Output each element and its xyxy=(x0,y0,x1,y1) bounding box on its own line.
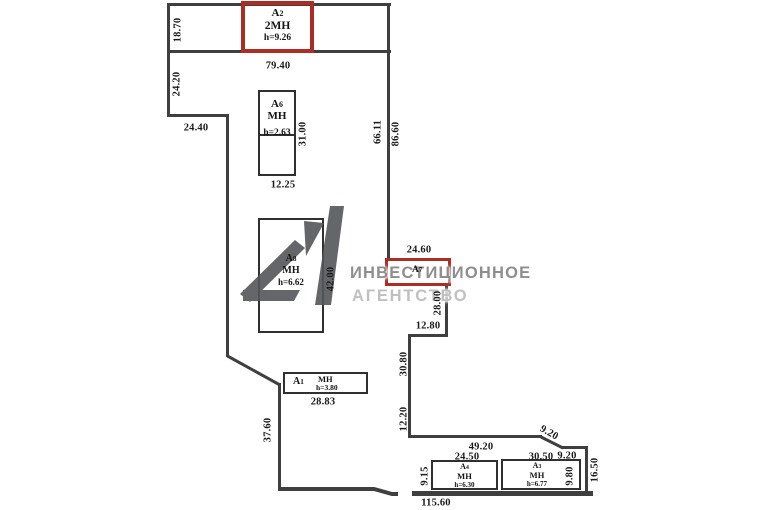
room-a6-label: А6 МН h=2.63 xyxy=(258,98,296,138)
dim-strip-width: 79.40 xyxy=(266,61,291,72)
wall-segment xyxy=(226,114,229,357)
dim-a7-top: 24.60 xyxy=(407,245,432,256)
dim-a3-top: 30.50 xyxy=(529,452,554,463)
wall-segment xyxy=(412,491,593,496)
watermark-line1: ИНВЕСТИЦИОННОЕ xyxy=(350,264,531,283)
dim-right-inner: 66.11 xyxy=(373,120,384,144)
room-a1-id: А1 xyxy=(293,376,304,387)
dim-bottom-total: 115.60 xyxy=(421,498,451,509)
dim-a1-bottom: 28.83 xyxy=(311,397,336,408)
dim-step-mid: 12.80 xyxy=(416,321,441,332)
room-a8-label: А8 МН h=6.62 xyxy=(258,253,324,287)
wall-segment xyxy=(408,435,542,438)
room-a7-label: А7 xyxy=(412,265,422,275)
dim-mid-lower: 12.20 xyxy=(399,407,410,432)
wall-segment xyxy=(167,114,229,117)
wall-segment xyxy=(561,446,588,449)
wall-segment xyxy=(167,3,170,116)
wall-slant xyxy=(228,356,281,385)
dim-br-right-side: 16.50 xyxy=(590,458,601,483)
dim-mid-upper: 30.80 xyxy=(399,352,410,377)
dim-br-slant: 9.20 xyxy=(538,424,560,443)
dim-a3-right: 9.80 xyxy=(565,466,576,485)
dim-a6-bottom: 12.25 xyxy=(271,180,296,191)
slanted-walls-and-logo xyxy=(0,0,770,510)
dim-left-lower: 37.60 xyxy=(263,418,274,443)
dim-a8-right: 42.00 xyxy=(326,267,337,292)
wall-segment xyxy=(585,446,588,495)
dim-left-upper: 24.20 xyxy=(172,72,183,97)
dim-br-right-top: 9.20 xyxy=(557,451,576,462)
dim-strip-height: 18.70 xyxy=(173,18,184,43)
floor-plan: ИНВЕСТИЦИОННОЕ АГЕНТСТВО А2 2МН h=9.26 А… xyxy=(0,0,770,510)
wall-segment xyxy=(278,383,281,491)
dim-a4-left: 9.15 xyxy=(420,466,431,485)
wall-segment xyxy=(408,334,448,337)
wall-bottom-left xyxy=(279,489,398,494)
watermark-line2: АГЕНТСТВО xyxy=(352,287,468,306)
dim-a7-below: 28.00 xyxy=(433,291,444,316)
room-a4-label: А4 МН h=6.30 xyxy=(431,462,498,489)
dim-a6-right: 31.00 xyxy=(298,122,309,147)
room-a2-label: А2 2МН h=9.26 xyxy=(241,7,314,43)
dim-right-outer: 86.60 xyxy=(391,122,402,147)
dim-a4-top: 24.50 xyxy=(455,452,480,463)
dim-left-step: 24.40 xyxy=(184,123,209,134)
room-a1-height: h=3.80 xyxy=(316,383,338,392)
